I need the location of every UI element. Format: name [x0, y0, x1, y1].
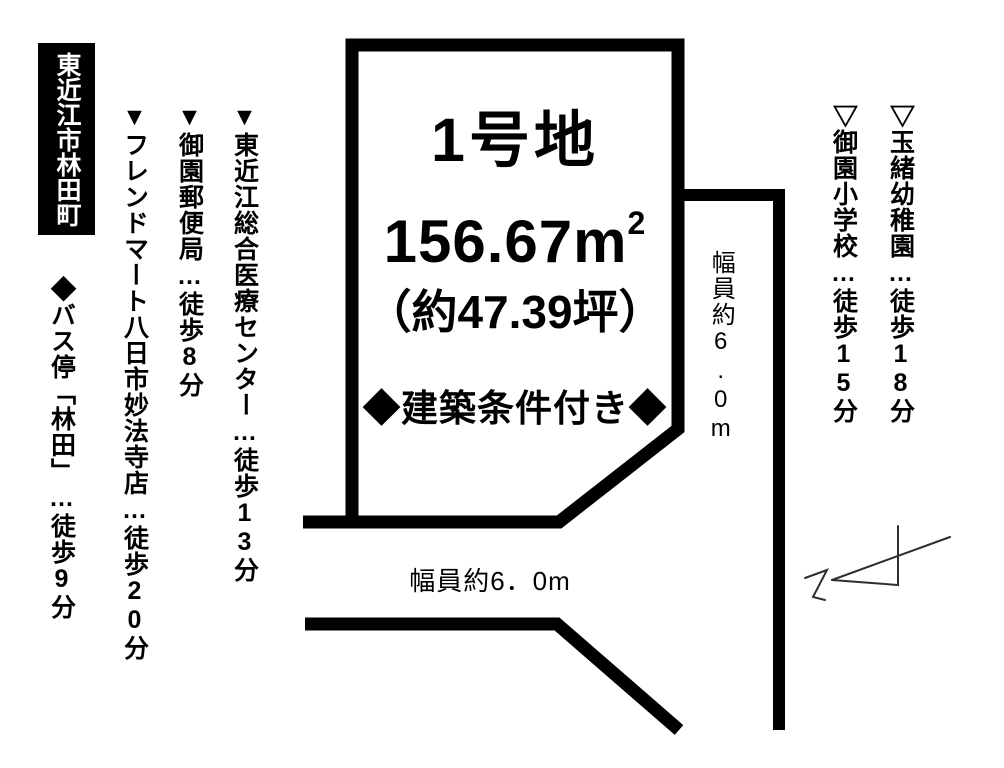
location-badge-text: 東近江市林田町 — [54, 52, 79, 227]
plot-name: 1号地 — [352, 110, 678, 171]
plot-area-sup: 2 — [628, 205, 647, 241]
plot-area-tsubo: （約47.39坪） — [352, 289, 678, 335]
location-badge: 東近江市林田町 — [38, 43, 95, 235]
road-width-label-right: 幅員約6.0m — [705, 250, 736, 444]
facility-item-medical-center: ▼東近江総合医療センター…徒歩13分 — [228, 103, 261, 583]
north-arrow-sketch — [805, 526, 950, 600]
plot-area-value: 156.67m — [384, 208, 628, 275]
facility-item-elementary-school: ▽御園小学校…徒歩15分 — [827, 103, 860, 424]
road-bottom-lower-line — [305, 624, 679, 730]
road-width-label-bottom: 幅員約6．0m — [352, 561, 628, 598]
plot-area-sqm: 156.67m2 — [352, 207, 678, 272]
land-plot-diagram: 東近江市林田町 ▼東近江総合医療センター…徒歩13分 ▼御園郵便局…徒歩8分 ▼… — [0, 0, 1004, 768]
facility-item-friend-mart: ▼フレンドマート八日市妙法寺店…徒歩20分 — [118, 103, 151, 661]
facility-item-kindergarten: ▽玉緒幼稚園…徒歩18分 — [884, 103, 917, 424]
facility-item-bus-stop: ◆バス停「林田」…徒歩9分 — [45, 276, 78, 620]
plot-condition: ◆建築条件付き◆ — [352, 390, 678, 427]
facility-item-post-office: ▼御園郵便局…徒歩8分 — [173, 103, 206, 398]
